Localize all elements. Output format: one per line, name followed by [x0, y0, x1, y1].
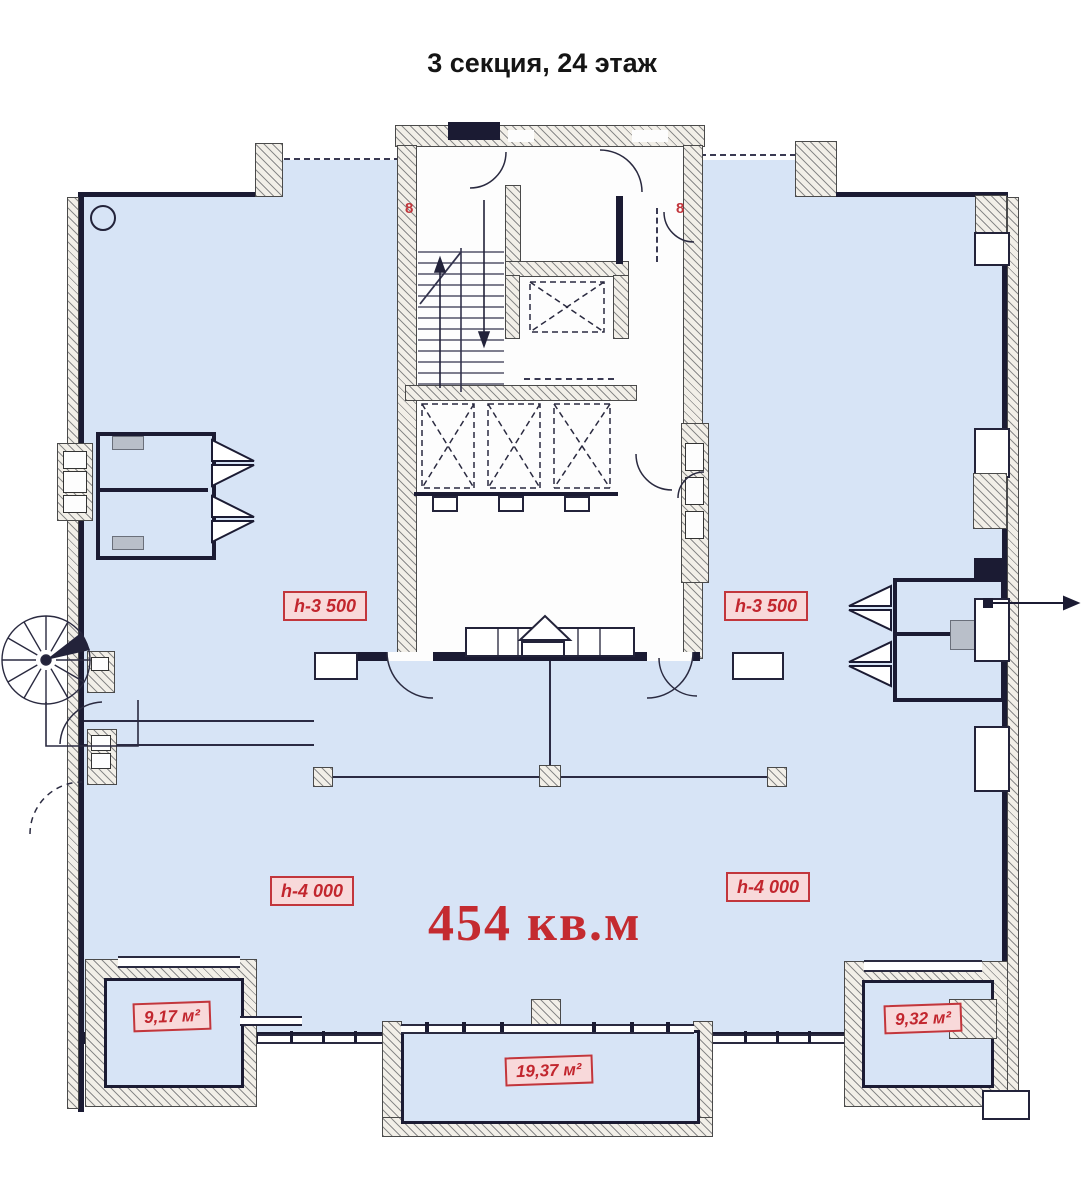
riser-box: [974, 598, 1010, 662]
riser-box: [686, 444, 703, 470]
corner-step: [982, 1090, 1030, 1120]
riser-box: [686, 512, 703, 538]
riser-box: [92, 658, 108, 670]
riser-box: [974, 428, 1010, 478]
wall-left-hatch: [68, 198, 78, 1108]
elevator-foot: [564, 496, 590, 512]
window-tick: [630, 1022, 634, 1032]
window-tick: [744, 1031, 747, 1043]
plan-title: 3 секция, 24 этаж: [0, 48, 1084, 79]
window-tick: [462, 1022, 466, 1032]
door-gap: [647, 652, 693, 661]
elevator-wall: [506, 262, 628, 276]
balcony-left-window: [118, 956, 240, 968]
elevator-bank-wall: [406, 386, 636, 400]
kitchenette-fixture: [732, 652, 784, 680]
balcony-center-window: [401, 1024, 694, 1034]
riser-box: [64, 496, 86, 512]
window-gap: [632, 130, 668, 142]
hall-line: [84, 744, 314, 746]
riser-box: [974, 726, 1010, 792]
riser-box: [64, 452, 86, 468]
riser-shaft: [974, 474, 1006, 528]
wall-block: [974, 558, 1004, 580]
door-gap: [387, 652, 433, 661]
ceiling-height-label-upper-left: h-3 500: [283, 591, 367, 621]
wc-shelf: [112, 536, 144, 550]
balcony-connector: [240, 1016, 302, 1026]
ceiling-height-label-upper-right: h-3 500: [724, 591, 808, 621]
elevator-wall: [506, 276, 519, 338]
wc-divider: [96, 488, 208, 492]
partition-wall: [616, 196, 623, 264]
axis-marker-left: 8: [405, 200, 413, 217]
pilaster: [976, 196, 1006, 232]
window-tick: [776, 1031, 779, 1043]
floor-area-step-right: [698, 160, 798, 200]
axis-marker-right: 8: [676, 200, 684, 217]
riser-box: [92, 736, 110, 750]
balcony-area-label-right: 9,32 м²: [884, 1003, 963, 1035]
window-tick: [500, 1022, 504, 1032]
balcony-area-label-center: 19,37 м²: [505, 1054, 593, 1086]
wall-segment: [80, 192, 258, 197]
window-tick: [592, 1022, 596, 1032]
ceiling-height-label-lower-right: h-4 000: [726, 872, 810, 902]
balcony-area-label-left: 9,17 м²: [133, 1001, 212, 1033]
window-band: [700, 154, 796, 156]
kitchenette-fixture: [314, 652, 358, 680]
elevator-foot: [432, 496, 458, 512]
window-tick: [322, 1031, 325, 1043]
floor-area-step-left: [282, 160, 402, 200]
window-tick: [666, 1022, 670, 1032]
riser-box: [64, 472, 86, 492]
column-round: [90, 205, 116, 231]
window-tick: [425, 1022, 429, 1032]
column: [314, 768, 332, 786]
hall-line: [84, 720, 314, 722]
column: [768, 768, 786, 786]
window-tick: [290, 1031, 293, 1043]
riser-box: [974, 232, 1010, 266]
partition-dashed: [656, 208, 658, 262]
elevator-foot: [498, 496, 524, 512]
floor-plan: 3 секция, 24 этаж 8 8 h-3 500 h-3 500 h-…: [0, 0, 1084, 1200]
wall-segment: [448, 122, 500, 140]
window-tick: [808, 1031, 811, 1043]
hall-line: [549, 661, 551, 778]
riser-box: [686, 478, 703, 504]
balcony-right-window: [864, 960, 982, 972]
machine-room-line: [524, 378, 614, 380]
wall-segment: [256, 144, 282, 196]
wall-segment: [796, 142, 836, 196]
elevator-wall: [614, 276, 628, 338]
window-gap: [508, 130, 534, 142]
window-band: [284, 158, 400, 160]
window-tick: [354, 1031, 357, 1043]
column: [540, 766, 560, 786]
total-area-label: 454 кв.м: [428, 894, 641, 953]
core-wall-west: [398, 146, 416, 658]
wc-shelf: [112, 436, 144, 450]
riser-box: [92, 754, 110, 768]
balcony-left-floor: [104, 978, 244, 1088]
ceiling-height-label-lower-left: h-4 000: [270, 876, 354, 906]
stair-wall: [506, 186, 520, 264]
wall-left: [78, 192, 84, 1112]
